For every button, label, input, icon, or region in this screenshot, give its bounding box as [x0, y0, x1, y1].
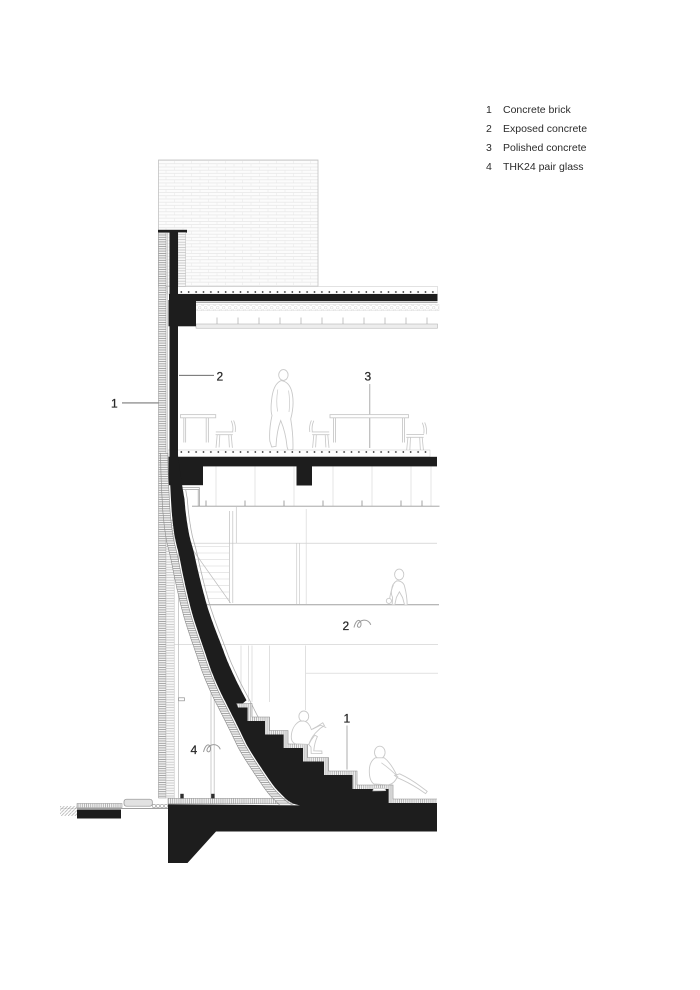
- svg-text:1: 1: [111, 397, 118, 411]
- svg-text:Concrete brick: Concrete brick: [503, 104, 571, 116]
- svg-text:THK24 pair glass: THK24 pair glass: [503, 161, 584, 173]
- svg-text:Polished concrete: Polished concrete: [503, 142, 587, 154]
- svg-text:Exposed concrete: Exposed concrete: [503, 123, 587, 135]
- svg-text:3: 3: [365, 370, 372, 384]
- svg-text:2: 2: [217, 370, 224, 384]
- svg-text:1: 1: [486, 104, 492, 116]
- svg-text:3: 3: [486, 142, 492, 154]
- svg-text:4: 4: [191, 743, 198, 757]
- svg-text:2: 2: [486, 123, 492, 135]
- svg-text:4: 4: [486, 161, 492, 173]
- svg-text:2: 2: [343, 619, 350, 633]
- svg-text:1: 1: [344, 712, 351, 726]
